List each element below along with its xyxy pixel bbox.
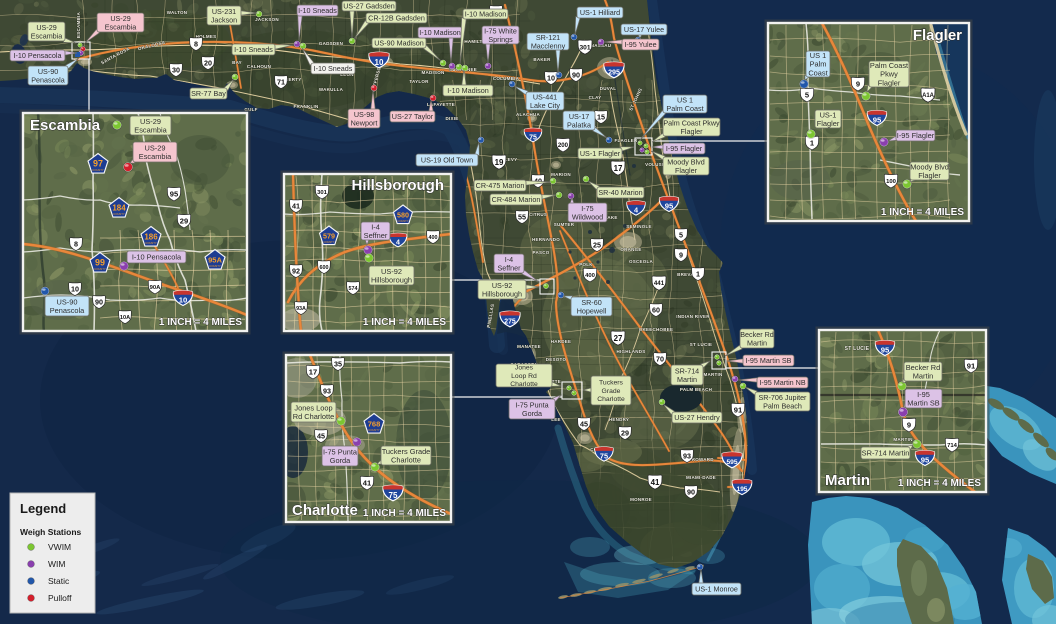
svg-text:90: 90 bbox=[572, 71, 580, 80]
svg-text:75: 75 bbox=[389, 491, 398, 500]
svg-text:93: 93 bbox=[323, 387, 331, 396]
svg-text:195: 195 bbox=[737, 486, 748, 493]
svg-text:DESOTO: DESOTO bbox=[546, 357, 567, 362]
svg-text:I-75 Punta: I-75 Punta bbox=[323, 447, 358, 456]
svg-text:VWIM: VWIM bbox=[48, 542, 71, 552]
svg-text:I-95 Flagler: I-95 Flagler bbox=[897, 131, 935, 140]
svg-text:25: 25 bbox=[593, 241, 601, 250]
svg-text:SR-714 Martin: SR-714 Martin bbox=[862, 449, 910, 458]
svg-text:Legend: Legend bbox=[20, 501, 66, 516]
svg-text:COLUMBIA: COLUMBIA bbox=[493, 76, 520, 81]
svg-text:Charlotte: Charlotte bbox=[391, 456, 421, 465]
svg-text:1 INCH = 4 MILES: 1 INCH = 4 MILES bbox=[363, 508, 446, 519]
svg-text:ESCAMBIA: ESCAMBIA bbox=[76, 12, 81, 39]
svg-text:186: 186 bbox=[144, 233, 158, 242]
svg-text:GADSDEN: GADSDEN bbox=[319, 41, 343, 46]
svg-text:US-27 Hendry: US-27 Hendry bbox=[674, 413, 720, 422]
svg-text:I-95 Martin SB: I-95 Martin SB bbox=[746, 356, 792, 365]
svg-text:US-19 Old Town: US-19 Old Town bbox=[421, 156, 473, 165]
svg-text:CITRUS: CITRUS bbox=[529, 212, 547, 217]
svg-text:SEMINOLE: SEMINOLE bbox=[626, 224, 652, 229]
svg-text:75: 75 bbox=[600, 452, 608, 461]
svg-text:Jones: Jones bbox=[515, 365, 534, 372]
svg-text:US-90 Madison: US-90 Madison bbox=[374, 39, 424, 48]
svg-text:COUNTY: COUNTY bbox=[398, 219, 409, 223]
svg-text:1: 1 bbox=[696, 270, 700, 279]
svg-text:Flagler: Flagler bbox=[918, 171, 941, 180]
svg-text:768: 768 bbox=[368, 420, 381, 429]
svg-text:19: 19 bbox=[495, 158, 504, 167]
svg-text:15: 15 bbox=[597, 113, 605, 122]
svg-text:Flagler: Flagler bbox=[878, 79, 901, 88]
svg-text:Rd Charlotte: Rd Charlotte bbox=[293, 412, 335, 421]
svg-text:10: 10 bbox=[547, 74, 555, 83]
svg-text:COUNTY: COUNTY bbox=[145, 241, 157, 245]
svg-text:Escambia: Escambia bbox=[134, 126, 167, 135]
svg-text:PALM BEACH: PALM BEACH bbox=[680, 387, 712, 392]
svg-text:MONROE: MONROE bbox=[630, 497, 652, 502]
svg-text:INDIAN RIVER: INDIAN RIVER bbox=[676, 314, 710, 319]
svg-text:US-90: US-90 bbox=[57, 297, 78, 306]
svg-text:US-92: US-92 bbox=[381, 267, 402, 276]
svg-text:Charlotte: Charlotte bbox=[510, 381, 538, 388]
svg-text:95: 95 bbox=[873, 116, 882, 125]
svg-text:I-95 Flagler: I-95 Flagler bbox=[666, 144, 703, 153]
svg-text:Palatka: Palatka bbox=[567, 120, 591, 129]
svg-text:92: 92 bbox=[292, 267, 300, 276]
svg-text:595: 595 bbox=[726, 459, 737, 466]
svg-text:CR-484 Marion: CR-484 Marion bbox=[492, 195, 541, 204]
svg-text:275: 275 bbox=[504, 318, 516, 325]
svg-text:FRANKLIN: FRANKLIN bbox=[294, 104, 319, 109]
svg-text:US-1: US-1 bbox=[820, 110, 837, 119]
svg-text:8: 8 bbox=[74, 240, 78, 249]
svg-text:Escambia: Escambia bbox=[31, 31, 63, 40]
svg-text:9: 9 bbox=[907, 421, 911, 430]
svg-text:400: 400 bbox=[429, 235, 438, 241]
svg-text:10: 10 bbox=[179, 296, 188, 305]
svg-text:Becker Rd: Becker Rd bbox=[906, 363, 941, 372]
svg-text:301: 301 bbox=[579, 44, 590, 51]
svg-text:9: 9 bbox=[856, 80, 860, 89]
svg-text:1 INCH = 4 MILES: 1 INCH = 4 MILES bbox=[898, 478, 981, 489]
svg-text:Charlotte: Charlotte bbox=[292, 502, 358, 519]
svg-text:1 INCH = 4 MILES: 1 INCH = 4 MILES bbox=[363, 317, 446, 328]
svg-text:MADISON: MADISON bbox=[422, 70, 445, 75]
svg-text:Moody Blvd: Moody Blvd bbox=[910, 162, 949, 171]
svg-text:1: 1 bbox=[810, 139, 814, 148]
svg-text:HENDRY: HENDRY bbox=[609, 417, 629, 422]
svg-text:Lake City: Lake City bbox=[530, 101, 560, 110]
svg-text:60: 60 bbox=[652, 306, 660, 315]
svg-text:COUNTY: COUNTY bbox=[113, 212, 125, 216]
svg-text:Wildwood: Wildwood bbox=[572, 212, 603, 221]
svg-text:MARTIN: MARTIN bbox=[893, 437, 913, 442]
svg-text:US-1 Monroe: US-1 Monroe bbox=[695, 585, 738, 594]
svg-text:95A: 95A bbox=[208, 256, 222, 265]
svg-text:WIM: WIM bbox=[48, 559, 65, 569]
svg-text:93A: 93A bbox=[296, 306, 306, 312]
svg-text:US-17 Yulee: US-17 Yulee bbox=[624, 25, 664, 34]
svg-text:OSCEOLA: OSCEOLA bbox=[629, 259, 654, 264]
svg-text:US-29: US-29 bbox=[140, 117, 161, 126]
svg-text:Hillsborough: Hillsborough bbox=[371, 276, 412, 285]
svg-text:US-29: US-29 bbox=[145, 143, 166, 152]
svg-text:99: 99 bbox=[95, 258, 105, 268]
svg-text:MIAMI-DADE: MIAMI-DADE bbox=[686, 475, 716, 480]
svg-text:COUNTY: COUNTY bbox=[94, 267, 106, 271]
svg-text:Loop Rd: Loop Rd bbox=[511, 373, 537, 380]
svg-text:I-95: I-95 bbox=[917, 390, 930, 399]
svg-text:HERNANDO: HERNANDO bbox=[532, 237, 560, 242]
svg-text:COUNTY: COUNTY bbox=[209, 264, 221, 268]
svg-text:Flagler: Flagler bbox=[913, 27, 962, 44]
svg-text:Seffner: Seffner bbox=[364, 231, 388, 240]
svg-text:100: 100 bbox=[886, 179, 897, 185]
svg-text:I-10 Madison: I-10 Madison bbox=[447, 86, 489, 95]
svg-text:97: 97 bbox=[93, 159, 103, 169]
svg-text:75: 75 bbox=[529, 134, 537, 141]
svg-text:71: 71 bbox=[277, 78, 285, 87]
svg-text:600: 600 bbox=[320, 265, 329, 271]
svg-text:5: 5 bbox=[805, 91, 809, 100]
svg-text:Coast: Coast bbox=[808, 69, 827, 78]
svg-text:CR-475 Marion: CR-475 Marion bbox=[476, 181, 525, 190]
svg-text:93: 93 bbox=[683, 452, 691, 461]
svg-text:I-10 Sneads: I-10 Sneads bbox=[298, 6, 337, 15]
svg-text:US-1 Flagler: US-1 Flagler bbox=[580, 149, 621, 158]
svg-text:BAKER: BAKER bbox=[533, 57, 551, 62]
svg-text:HARDEE: HARDEE bbox=[551, 339, 572, 344]
svg-text:29: 29 bbox=[180, 217, 188, 226]
svg-text:9: 9 bbox=[679, 251, 683, 260]
svg-text:400: 400 bbox=[585, 273, 596, 279]
svg-text:Penascola: Penascola bbox=[50, 306, 85, 315]
svg-text:Jackson: Jackson bbox=[211, 15, 237, 24]
svg-text:Seffner: Seffner bbox=[497, 263, 521, 272]
svg-text:I-4: I-4 bbox=[371, 222, 380, 231]
svg-text:Escambia: Escambia bbox=[30, 117, 101, 134]
svg-text:30: 30 bbox=[172, 66, 180, 75]
svg-text:ST LUCIE: ST LUCIE bbox=[690, 342, 713, 347]
svg-text:Escambia: Escambia bbox=[105, 22, 137, 31]
svg-text:MARION: MARION bbox=[551, 172, 571, 177]
svg-text:41: 41 bbox=[651, 478, 660, 487]
svg-text:Macclenny: Macclenny bbox=[531, 41, 566, 50]
svg-text:WAKULLA: WAKULLA bbox=[319, 87, 344, 92]
svg-text:I-10 Sneads: I-10 Sneads bbox=[234, 45, 273, 54]
svg-text:91: 91 bbox=[734, 406, 742, 415]
svg-text:CALHOUN: CALHOUN bbox=[247, 64, 271, 69]
svg-text:COUNTY: COUNTY bbox=[368, 428, 380, 432]
svg-text:45: 45 bbox=[317, 432, 325, 441]
svg-text:1 INCH = 4 MILES: 1 INCH = 4 MILES bbox=[881, 207, 964, 218]
svg-text:I-95 Martin NB: I-95 Martin NB bbox=[759, 378, 806, 387]
svg-text:LEVY: LEVY bbox=[505, 157, 518, 162]
svg-text:SR-77 Bay: SR-77 Bay bbox=[191, 89, 226, 98]
svg-text:41: 41 bbox=[363, 479, 371, 488]
svg-text:70: 70 bbox=[656, 355, 664, 364]
svg-text:Jones Loop: Jones Loop bbox=[294, 403, 332, 412]
svg-text:MANATEE: MANATEE bbox=[517, 344, 541, 349]
svg-text:Martin: Martin bbox=[825, 472, 870, 489]
svg-text:CR-12B Gadsden: CR-12B Gadsden bbox=[368, 14, 425, 23]
svg-text:COUNTY: COUNTY bbox=[92, 168, 104, 172]
svg-text:301: 301 bbox=[317, 190, 328, 196]
svg-text:27: 27 bbox=[614, 334, 623, 343]
svg-text:Springs: Springs bbox=[488, 35, 513, 44]
svg-text:CLAY: CLAY bbox=[589, 95, 602, 100]
svg-text:579: 579 bbox=[323, 232, 335, 241]
svg-text:5: 5 bbox=[679, 231, 683, 240]
svg-text:90: 90 bbox=[687, 488, 695, 497]
svg-text:COUNTY: COUNTY bbox=[324, 240, 335, 244]
svg-text:BAY: BAY bbox=[232, 60, 242, 65]
svg-text:Martin: Martin bbox=[677, 375, 697, 384]
svg-text:Palm Coast: Palm Coast bbox=[870, 61, 908, 70]
svg-text:41: 41 bbox=[292, 202, 300, 211]
svg-text:Grade: Grade bbox=[602, 388, 621, 395]
svg-text:200: 200 bbox=[558, 142, 569, 149]
svg-text:Pkwy: Pkwy bbox=[880, 70, 898, 79]
svg-text:Flagler: Flagler bbox=[681, 127, 704, 136]
svg-text:Palm Coast: Palm Coast bbox=[666, 104, 703, 113]
svg-text:Palm Beach: Palm Beach bbox=[763, 401, 802, 410]
svg-text:Flagler: Flagler bbox=[675, 166, 698, 175]
svg-text:8: 8 bbox=[194, 40, 198, 49]
svg-text:91: 91 bbox=[967, 362, 975, 371]
svg-text:Penascola: Penascola bbox=[31, 75, 65, 84]
svg-text:Hillsborough: Hillsborough bbox=[482, 289, 522, 298]
svg-text:Gorda: Gorda bbox=[522, 409, 542, 418]
svg-text:I-95 Yulee: I-95 Yulee bbox=[624, 40, 656, 49]
svg-text:20: 20 bbox=[204, 59, 212, 68]
svg-text:90: 90 bbox=[95, 298, 103, 307]
svg-text:ALACHUA: ALACHUA bbox=[516, 112, 540, 117]
svg-text:DUVAL: DUVAL bbox=[600, 86, 616, 91]
svg-text:HIGHLANDS: HIGHLANDS bbox=[617, 349, 646, 354]
svg-text:55: 55 bbox=[518, 213, 526, 222]
svg-text:Charlotte: Charlotte bbox=[597, 396, 625, 403]
svg-text:JACKSON: JACKSON bbox=[255, 17, 279, 22]
svg-text:I-10 Sneads: I-10 Sneads bbox=[314, 64, 353, 73]
svg-text:SUMTER: SUMTER bbox=[554, 222, 575, 227]
svg-text:10: 10 bbox=[71, 285, 79, 294]
svg-text:ORANGE: ORANGE bbox=[620, 247, 641, 252]
svg-text:95: 95 bbox=[881, 346, 890, 355]
svg-text:1 INCH = 4 MILES: 1 INCH = 4 MILES bbox=[159, 317, 242, 328]
svg-text:DIXIE: DIXIE bbox=[445, 116, 458, 121]
svg-text:10: 10 bbox=[375, 58, 384, 67]
svg-text:95: 95 bbox=[665, 202, 674, 211]
svg-text:US-27 Taylor: US-27 Taylor bbox=[392, 112, 434, 121]
svg-text:90A: 90A bbox=[150, 285, 162, 291]
svg-text:Martin: Martin bbox=[747, 338, 767, 347]
svg-text:Newport: Newport bbox=[351, 118, 378, 127]
svg-text:Hopewell: Hopewell bbox=[577, 306, 607, 315]
svg-text:29: 29 bbox=[621, 429, 629, 438]
svg-text:A1A: A1A bbox=[922, 93, 935, 99]
svg-text:Weigh Stations: Weigh Stations bbox=[20, 527, 82, 537]
svg-text:295: 295 bbox=[608, 68, 620, 76]
svg-text:Pulloff: Pulloff bbox=[48, 593, 72, 603]
svg-text:OKEECHOBEE: OKEECHOBEE bbox=[639, 327, 674, 332]
svg-text:441: 441 bbox=[654, 280, 665, 287]
svg-text:I-10 Madison: I-10 Madison bbox=[419, 28, 461, 37]
svg-text:95: 95 bbox=[170, 190, 178, 199]
svg-text:Palm: Palm bbox=[810, 60, 827, 69]
svg-text:10A: 10A bbox=[120, 315, 130, 321]
svg-text:Flagler: Flagler bbox=[817, 119, 840, 128]
svg-text:95: 95 bbox=[921, 456, 930, 465]
svg-text:I-10 Madison: I-10 Madison bbox=[465, 10, 507, 19]
svg-text:TAYLOR: TAYLOR bbox=[409, 79, 429, 84]
svg-text:Martin SB: Martin SB bbox=[907, 399, 940, 408]
svg-text:ST LUCIE: ST LUCIE bbox=[845, 346, 870, 352]
svg-text:US-27 Gadsden: US-27 Gadsden bbox=[343, 2, 395, 11]
svg-text:MARTIN: MARTIN bbox=[704, 372, 723, 377]
svg-text:US 1: US 1 bbox=[810, 51, 826, 60]
svg-text:4: 4 bbox=[396, 239, 400, 246]
svg-text:POLK: POLK bbox=[579, 262, 593, 267]
svg-text:Hillsborough: Hillsborough bbox=[352, 177, 445, 194]
svg-text:714: 714 bbox=[947, 443, 958, 449]
svg-text:Martin: Martin bbox=[913, 372, 934, 381]
svg-text:US-1 Hilliard: US-1 Hilliard bbox=[580, 8, 620, 17]
svg-text:Escambia: Escambia bbox=[139, 152, 172, 161]
svg-text:574: 574 bbox=[349, 286, 358, 292]
svg-text:PASCO: PASCO bbox=[533, 250, 550, 255]
svg-text:Tuckers: Tuckers bbox=[599, 380, 624, 387]
svg-text:45: 45 bbox=[580, 420, 588, 429]
svg-text:SR-40 Marion: SR-40 Marion bbox=[598, 188, 642, 197]
svg-text:17: 17 bbox=[614, 164, 623, 173]
svg-text:WALTON: WALTON bbox=[167, 10, 188, 15]
svg-text:I-10 Pensacola: I-10 Pensacola bbox=[132, 253, 182, 262]
svg-text:184: 184 bbox=[112, 204, 126, 213]
svg-text:Static: Static bbox=[48, 576, 70, 586]
svg-text:580: 580 bbox=[397, 211, 409, 220]
svg-text:Tuckers Grade: Tuckers Grade bbox=[382, 447, 431, 456]
svg-text:35: 35 bbox=[334, 360, 342, 369]
svg-text:I-10 Pensacola: I-10 Pensacola bbox=[14, 51, 62, 60]
svg-text:Gorda: Gorda bbox=[330, 456, 351, 465]
svg-text:17: 17 bbox=[309, 368, 317, 377]
